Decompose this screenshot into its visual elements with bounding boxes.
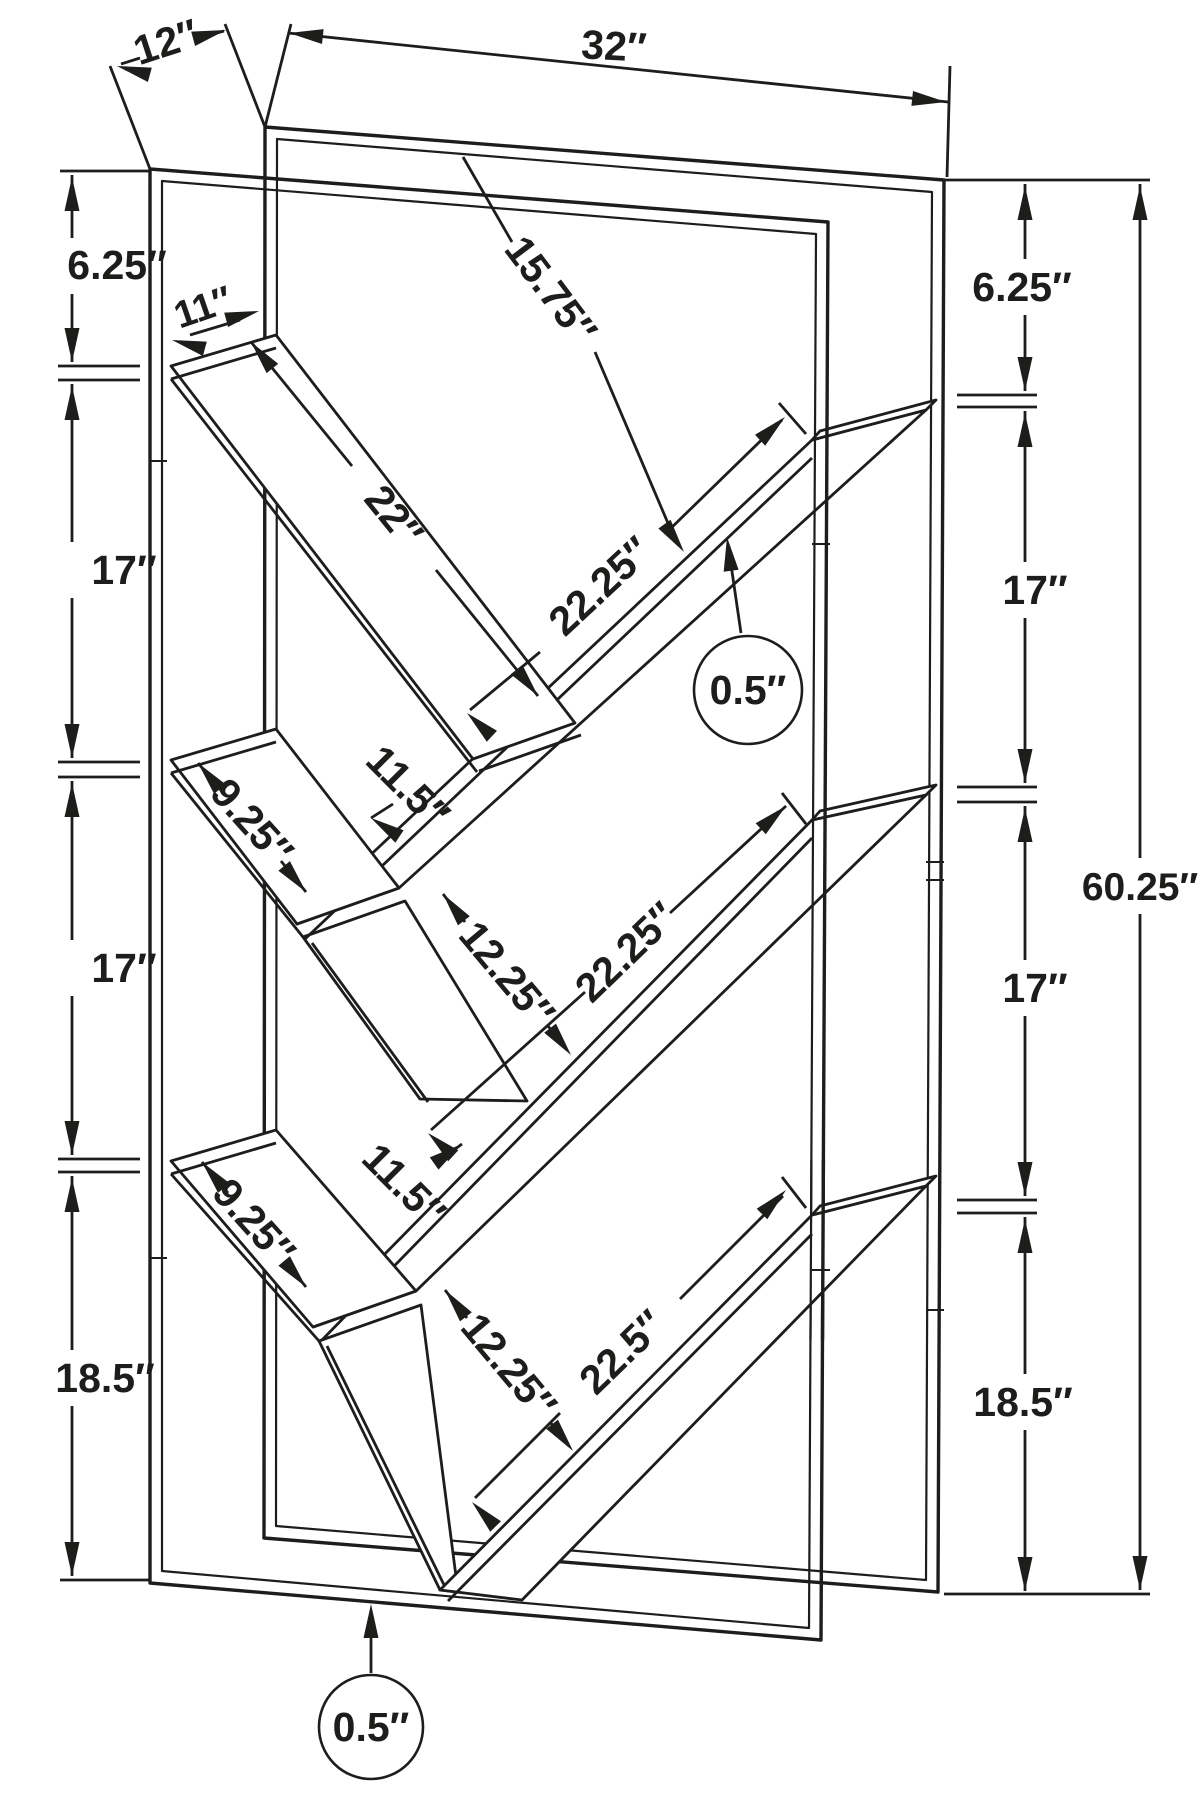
svg-text:32″: 32″ xyxy=(580,21,648,70)
svg-text:18.5″: 18.5″ xyxy=(55,1355,154,1401)
svg-text:0.5″: 0.5″ xyxy=(333,1704,410,1750)
svg-text:18.5″: 18.5″ xyxy=(973,1379,1072,1425)
svg-text:60.25″: 60.25″ xyxy=(1082,866,1198,909)
svg-text:6.25″: 6.25″ xyxy=(67,242,166,288)
svg-text:17″: 17″ xyxy=(1002,965,1067,1011)
svg-text:0.5″: 0.5″ xyxy=(710,667,787,713)
svg-text:17″: 17″ xyxy=(1002,567,1067,613)
svg-text:17″: 17″ xyxy=(91,547,156,593)
svg-text:6.25″: 6.25″ xyxy=(972,264,1071,310)
svg-text:17″: 17″ xyxy=(91,945,156,991)
